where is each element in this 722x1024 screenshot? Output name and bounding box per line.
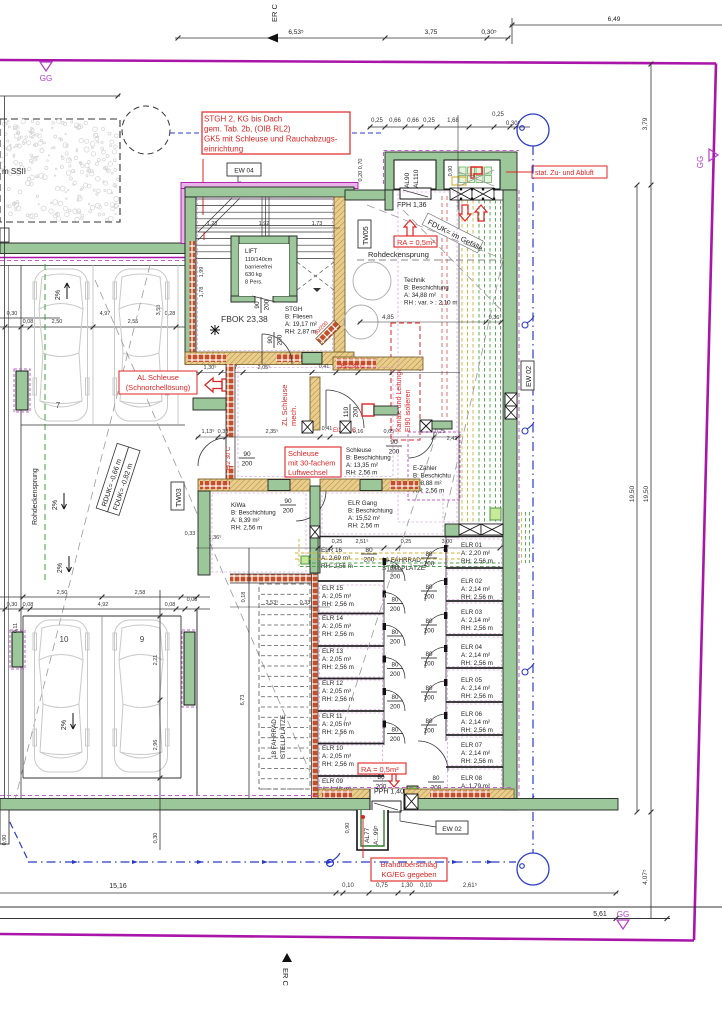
- svg-text:0,25: 0,25: [492, 112, 504, 118]
- svg-text:0,65⁵: 0,65⁵: [384, 428, 397, 435]
- svg-text:200: 200: [390, 639, 401, 646]
- svg-text:90: 90: [284, 498, 292, 505]
- svg-text:A: 13,35 m²: A: 13,35 m²: [346, 462, 378, 469]
- svg-text:0,33: 0,33: [218, 429, 229, 435]
- svg-text:ELR 13: ELR 13: [322, 648, 344, 655]
- svg-text:A: 2,14 m²: A: 2,14 m²: [461, 586, 490, 593]
- svg-text:80: 80: [392, 694, 399, 701]
- svg-text:ZL Schleuse: ZL Schleuse: [280, 385, 289, 426]
- svg-text:B: Fliesen: B: Fliesen: [285, 314, 313, 321]
- svg-text:Luftwechsel: Luftwechsel: [288, 468, 328, 477]
- svg-text:0,18: 0,18: [241, 592, 247, 603]
- svg-text:RH: 2,56 m: RH: 2,56 m: [461, 758, 493, 765]
- svg-text:A: 2,05 m³: A: 2,05 m³: [322, 623, 351, 630]
- svg-text:200: 200: [364, 557, 375, 564]
- svg-text:Schleuse: Schleuse: [288, 449, 319, 458]
- svg-text:2,05⁵: 2,05⁵: [258, 364, 271, 371]
- svg-text:80: 80: [426, 618, 433, 625]
- svg-text:Rohdeckensprung: Rohdeckensprung: [32, 468, 39, 525]
- svg-text:200: 200: [424, 728, 435, 735]
- svg-text:80: 80: [392, 629, 399, 636]
- svg-text:A: 15,52 m²: A: 15,52 m²: [348, 515, 380, 522]
- svg-text:EW 02: EW 02: [526, 366, 533, 387]
- svg-text:RH: 2,56 m: RH: 2,56 m: [322, 729, 354, 736]
- svg-text:ELR 05: ELR 05: [461, 677, 483, 684]
- svg-text:2,35⁵: 2,35⁵: [266, 428, 279, 435]
- svg-text:2,50: 2,50: [57, 590, 68, 596]
- svg-text:STELLPLÄTZE: STELLPLÄTZE: [279, 715, 287, 758]
- svg-text:Schleuse: Schleuse: [346, 447, 372, 454]
- svg-text:200: 200: [424, 628, 435, 635]
- svg-text:ELR 02: ELR 02: [461, 578, 483, 585]
- svg-text:RH: 2,56 m: RH: 2,56 m: [346, 470, 377, 477]
- svg-text:4,97: 4,97: [100, 311, 111, 317]
- svg-text:2,61⁵: 2,61⁵: [463, 882, 478, 889]
- svg-text:ELR 01: ELR 01: [461, 542, 483, 549]
- svg-text:90: 90: [267, 336, 274, 344]
- svg-text:1,99: 1,99: [199, 267, 205, 278]
- svg-text:1,78: 1,78: [199, 287, 205, 298]
- svg-text:A: 2,05 m³: A: 2,05 m³: [322, 656, 351, 663]
- svg-text:0,28: 0,28: [165, 311, 176, 317]
- svg-text:200: 200: [353, 406, 360, 417]
- svg-text:0,33: 0,33: [185, 531, 196, 537]
- svg-text:RH: 2,56 m: RH: 2,56 m: [461, 625, 493, 632]
- svg-text:barrierefrei: barrierefrei: [245, 265, 272, 271]
- svg-text:RH: 2,56 m: RH: 2,56 m: [461, 558, 493, 565]
- svg-text:ELR 14: ELR 14: [322, 615, 344, 622]
- svg-text:0,25: 0,25: [423, 118, 435, 124]
- svg-text:0,30: 0,30: [153, 833, 159, 844]
- svg-text:GG: GG: [696, 156, 705, 168]
- svg-text:B: Beschichtu: B: Beschichtu: [413, 473, 451, 480]
- svg-text:8 Pers.: 8 Pers.: [245, 280, 263, 286]
- svg-text:10: 10: [60, 635, 69, 644]
- svg-text:0,30: 0,30: [7, 311, 18, 317]
- svg-text:KiWa: KiWa: [231, 502, 246, 509]
- svg-text:0,08: 0,08: [187, 597, 198, 603]
- svg-text:0,08: 0,08: [23, 319, 34, 325]
- svg-text:A: 2,14 m²: A: 2,14 m²: [461, 617, 490, 624]
- svg-text:80: 80: [392, 662, 399, 669]
- svg-text:80: 80: [426, 651, 433, 658]
- svg-text:A: 19,17 m²: A: 19,17 m²: [285, 321, 317, 328]
- svg-text:A: 2,14 m²: A: 2,14 m²: [461, 719, 490, 726]
- svg-text:Rohdeckensprung: Rohdeckensprung: [368, 250, 429, 259]
- svg-text:5,61: 5,61: [593, 911, 607, 918]
- svg-text:1,36⁵: 1,36⁵: [209, 534, 222, 541]
- svg-text:RH: 2,56 m: RH: 2,56 m: [322, 761, 354, 768]
- svg-text:STGH: STGH: [285, 306, 302, 313]
- svg-text:0,41: 0,41: [319, 364, 330, 370]
- svg-text:1,23: 1,23: [207, 221, 218, 227]
- svg-text:200: 200: [424, 594, 435, 601]
- svg-text:RH: 2,87 m: RH: 2,87 m: [285, 329, 316, 336]
- svg-text:EW 02: EW 02: [442, 826, 462, 833]
- svg-text:RH: 2,56 m: RH: 2,56 m: [461, 727, 493, 734]
- svg-text:3,75: 3,75: [425, 29, 438, 36]
- svg-text:RH: 2,56 m: RH: 2,56 m: [322, 664, 354, 671]
- svg-text:0,90: 0,90: [345, 823, 351, 834]
- svg-text:80: 80: [426, 584, 433, 591]
- svg-text:90: 90: [390, 439, 398, 446]
- svg-text:FBOK 23,38: FBOK 23,38: [221, 314, 268, 324]
- svg-text:RH : var. > : 2,10 m: RH : var. > : 2,10 m: [404, 300, 457, 307]
- svg-text:mit 30-fachem: mit 30-fachem: [288, 459, 336, 468]
- svg-text:0,90: 0,90: [448, 166, 454, 177]
- svg-text:B: Beschichtung: B: Beschichtung: [348, 508, 393, 515]
- svg-text:3,79: 3,79: [642, 117, 649, 130]
- svg-text:6,49: 6,49: [608, 16, 621, 23]
- svg-text:0,20 0,70: 0,20 0,70: [358, 159, 364, 182]
- svg-text:A: 2,05 m³: A: 2,05 m³: [322, 753, 351, 760]
- svg-text:ELR 15: ELR 15: [322, 585, 344, 592]
- svg-text:AL Schleuse: AL Schleuse: [137, 373, 179, 382]
- svg-text:200: 200: [264, 299, 271, 310]
- svg-text:(Schnorchellösung): (Schnorchellösung): [126, 383, 191, 392]
- svg-text:19,50: 19,50: [643, 485, 650, 502]
- svg-text:80: 80: [377, 774, 385, 781]
- svg-text:STGH 2, KG bis Dach: STGH 2, KG bis Dach: [204, 115, 282, 124]
- svg-text:KG/EG gegeben: KG/EG gegeben: [381, 870, 436, 879]
- svg-text:A: 2,14 m²: A: 2,14 m²: [461, 750, 490, 757]
- svg-text:0,41: 0,41: [322, 426, 333, 432]
- svg-text:2,42: 2,42: [447, 436, 458, 442]
- svg-text:A: 2,69 m³: A: 2,69 m³: [321, 555, 350, 562]
- svg-text:Technik: Technik: [404, 277, 426, 284]
- svg-text:LIFT: LIFT: [245, 249, 258, 255]
- svg-text:200: 200: [390, 704, 401, 711]
- svg-text:RH: 2,56 m: RH: 2,56 m: [461, 660, 493, 667]
- svg-text:80: 80: [426, 685, 433, 692]
- svg-text:Brandüberschlag: Brandüberschlag: [381, 860, 438, 869]
- svg-text:2%: 2%: [57, 563, 64, 573]
- svg-text:0,10: 0,10: [342, 883, 354, 889]
- svg-text:4,07⁵: 4,07⁵: [642, 869, 649, 885]
- svg-text:200: 200: [390, 736, 401, 743]
- svg-text:80: 80: [426, 551, 433, 558]
- svg-text:0,75: 0,75: [376, 883, 388, 889]
- svg-text:stat. Zu- und Abluft: stat. Zu- und Abluft: [535, 170, 594, 177]
- svg-text:1,30: 1,30: [401, 883, 413, 889]
- svg-text:0,25: 0,25: [401, 539, 412, 545]
- svg-text:gem. Tab. 2b, (OIB RL2): gem. Tab. 2b, (OIB RL2): [204, 125, 291, 134]
- svg-text:7: 7: [56, 401, 61, 410]
- svg-text:ELR 08: ELR 08: [461, 775, 483, 782]
- svg-text:0,30⁵: 0,30⁵: [481, 29, 497, 36]
- svg-text:RH: 2,56 m: RH: 2,56 m: [322, 696, 354, 703]
- svg-text:200: 200: [424, 661, 435, 668]
- svg-text:15,16: 15,16: [109, 883, 127, 890]
- svg-text:RA = 0,5m²: RA = 0,5m²: [397, 238, 435, 247]
- svg-text:EI2 30 C: EI2 30 C: [226, 446, 232, 470]
- svg-text:AL110: AL110: [413, 169, 420, 188]
- svg-text:B: Beschichtung: B: Beschichtung: [404, 285, 449, 292]
- svg-text:RH: 2,56 m: RH: 2,56 m: [461, 693, 493, 700]
- svg-text:1,73: 1,73: [312, 221, 323, 227]
- svg-text:1,92: 1,92: [259, 221, 270, 227]
- svg-text:m SSII: m SSII: [2, 167, 26, 176]
- svg-text:2,21: 2,21: [153, 655, 159, 666]
- svg-text:ELR 06: ELR 06: [461, 711, 483, 718]
- svg-text:0,33: 0,33: [300, 600, 311, 606]
- svg-text:0,16: 0,16: [353, 429, 364, 435]
- svg-text:EW 04: EW 04: [234, 168, 254, 175]
- svg-text:2,51⁵: 2,51⁵: [356, 538, 369, 545]
- svg-text:200: 200: [283, 508, 294, 515]
- svg-text:ER C: ER C: [270, 3, 279, 22]
- svg-text:ELR 11: ELR 11: [322, 713, 343, 720]
- svg-text:200: 200: [242, 461, 253, 468]
- svg-text:1,13⁵: 1,13⁵: [202, 428, 215, 435]
- svg-text:80: 80: [426, 718, 433, 725]
- svg-text:RH: 2,56 m: RH: 2,56 m: [322, 601, 354, 608]
- svg-text:19,50: 19,50: [629, 485, 636, 502]
- svg-text:200: 200: [390, 671, 401, 678]
- svg-text:0,11: 0,11: [13, 623, 19, 633]
- svg-text:2,96: 2,96: [153, 740, 159, 751]
- svg-text:2%: 2%: [61, 720, 68, 730]
- svg-text:1,68: 1,68: [447, 118, 459, 124]
- svg-text:EI90 isolieren: EI90 isolieren: [405, 389, 412, 432]
- svg-text:B: Beschichtung: B: Beschichtung: [346, 455, 391, 462]
- svg-text:6,53⁵: 6,53⁵: [288, 29, 304, 36]
- svg-text:AL90: AL90: [404, 172, 411, 188]
- svg-text:RH: 2,56 m: RH: 2,56 m: [348, 523, 379, 530]
- svg-text:A: 8,39 m²: A: 8,39 m²: [231, 517, 260, 524]
- svg-text:mech.: mech.: [289, 406, 298, 426]
- svg-text:0,08: 0,08: [23, 602, 34, 608]
- svg-text:PPH 1,40: PPH 1,40: [374, 789, 404, 796]
- svg-text:A: 2,14 m²: A: 2,14 m²: [461, 685, 490, 692]
- svg-text:TW03: TW03: [176, 488, 183, 507]
- svg-text:EI2 30 C: EI2 30 C: [341, 364, 365, 370]
- svg-text:GG: GG: [617, 910, 629, 919]
- svg-text:GG: GG: [40, 74, 52, 83]
- svg-text:200: 200: [390, 606, 401, 613]
- svg-text:ELR 10: ELR 10: [322, 745, 344, 752]
- svg-text:2%: 2%: [55, 290, 62, 300]
- svg-text:AL77: AL77: [364, 827, 371, 843]
- svg-text:A:..99⁵: A:..99⁵: [373, 825, 380, 845]
- svg-text:A: 2,14 m²: A: 2,14 m²: [461, 652, 490, 659]
- svg-text:9: 9: [140, 635, 145, 644]
- svg-text:0,25: 0,25: [332, 539, 343, 545]
- svg-text:RH: 2,56 m: RH: 2,56 m: [461, 594, 493, 601]
- svg-text:Kanäle und Leitungen: Kanäle und Leitungen: [396, 364, 403, 432]
- svg-text:0,90: 0,90: [2, 835, 8, 846]
- svg-text:ELR 03: ELR 03: [461, 609, 483, 616]
- svg-text:TW05: TW05: [363, 226, 370, 245]
- svg-text:1,30⁵: 1,30⁵: [204, 364, 217, 371]
- svg-text:0,08: 0,08: [165, 602, 176, 608]
- svg-text:2,55: 2,55: [128, 319, 139, 325]
- svg-text:GK5 mit Schleuse und Rauchabzu: GK5 mit Schleuse und Rauchabzugs-: [204, 135, 338, 144]
- svg-text:2%: 2%: [52, 500, 59, 510]
- svg-text:A: 2,05 m³: A: 2,05 m³: [322, 593, 351, 600]
- svg-text:110: 110: [343, 406, 350, 417]
- svg-text:4,92: 4,92: [98, 602, 109, 608]
- svg-text:A: 2,05 m³: A: 2,05 m³: [322, 688, 351, 695]
- svg-text:0,10: 0,10: [420, 883, 432, 889]
- svg-text:200: 200: [424, 561, 435, 568]
- svg-text:ELR 07: ELR 07: [461, 742, 483, 749]
- svg-text:630 kg: 630 kg: [245, 272, 262, 278]
- svg-text:RH: 2,56 m: RH: 2,56 m: [231, 525, 262, 532]
- svg-text:A: 2,05 m³: A: 2,05 m³: [322, 721, 351, 728]
- svg-text:4,85: 4,85: [382, 315, 394, 321]
- svg-text:A: 2,20 m²: A: 2,20 m²: [461, 550, 490, 557]
- svg-text:RA = 0,5m²: RA = 0,5m²: [361, 765, 399, 774]
- svg-text:0,25: 0,25: [371, 118, 383, 124]
- svg-text:ELR 09: ELR 09: [322, 778, 344, 785]
- svg-text:18 FAHRRAD: 18 FAHRRAD: [271, 719, 278, 758]
- svg-text:ELR 04: ELR 04: [461, 644, 483, 651]
- svg-text:0,30: 0,30: [7, 602, 18, 608]
- svg-text:110/140cm: 110/140cm: [245, 257, 273, 263]
- svg-text:B: Beschichtung: B: Beschichtung: [231, 510, 276, 517]
- svg-text:3,53⁵: 3,53⁵: [266, 599, 279, 606]
- svg-text:ELR 12: ELR 12: [322, 680, 344, 687]
- svg-text:2,58: 2,58: [135, 590, 146, 596]
- svg-text:ER C: ER C: [281, 968, 290, 987]
- svg-text:0,66: 0,66: [389, 118, 401, 124]
- svg-text:RH: 2,56 m: RH: 2,56 m: [322, 631, 354, 638]
- svg-text:80: 80: [433, 775, 440, 782]
- svg-text:0,66: 0,66: [407, 118, 419, 124]
- svg-text:90: 90: [243, 451, 251, 458]
- svg-text:A: 34,88 m²: A: 34,88 m²: [404, 292, 436, 299]
- svg-text:3,00: 3,00: [442, 539, 453, 545]
- svg-text:einrichtung: einrichtung: [204, 145, 243, 154]
- svg-text:ELR Gang: ELR Gang: [348, 500, 377, 507]
- svg-text:2,50: 2,50: [52, 319, 63, 325]
- svg-text:200: 200: [424, 695, 435, 702]
- svg-text:90: 90: [254, 301, 261, 309]
- svg-text:6,73: 6,73: [240, 695, 246, 706]
- svg-text:80: 80: [392, 727, 399, 734]
- svg-text:FPH 1,36: FPH 1,36: [397, 202, 427, 209]
- svg-text:80: 80: [392, 597, 399, 604]
